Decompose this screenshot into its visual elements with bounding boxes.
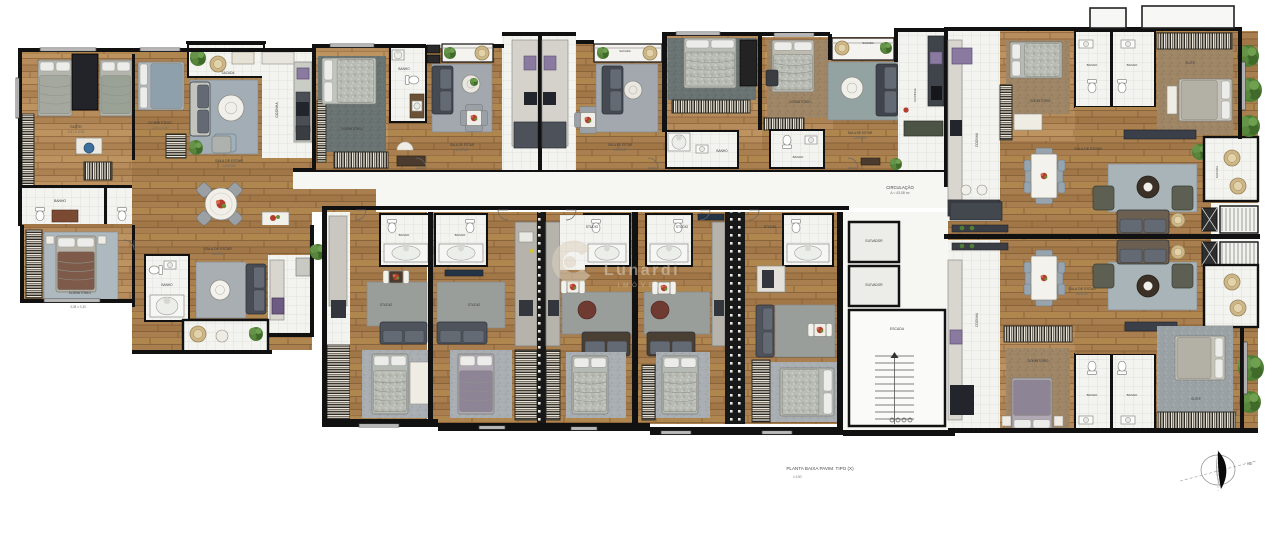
svg-text:SALA DE ESTAR: SALA DE ESTAR <box>1074 147 1102 151</box>
svg-text:ELEVADOR: ELEVADOR <box>865 283 883 287</box>
svg-text:SUÍTE: SUÍTE <box>1191 397 1202 401</box>
svg-text:BANHO: BANHO <box>716 149 728 153</box>
svg-text:ELEVADOR: ELEVADOR <box>865 239 883 243</box>
svg-text:COZINHA: COZINHA <box>913 88 917 102</box>
svg-text:COZINHA: COZINHA <box>275 102 279 118</box>
svg-text:BANHO: BANHO <box>793 155 804 159</box>
svg-text:BANHO: BANHO <box>1087 63 1098 67</box>
svg-text:Lunardi: Lunardi <box>604 262 680 279</box>
svg-text:COZINHA: COZINHA <box>975 312 979 327</box>
svg-text:JANTAR: JANTAR <box>854 136 867 140</box>
svg-text:DORMITÓRIO: DORMITÓRIO <box>341 126 363 131</box>
svg-text:ESCADA: ESCADA <box>890 327 905 331</box>
svg-text:SACADA: SACADA <box>619 49 631 53</box>
svg-text:2.20 x 3.10: 2.20 x 3.10 <box>152 126 169 130</box>
svg-text:SUÍTE: SUÍTE <box>1185 61 1196 65</box>
svg-text:DORMITÓRIO: DORMITÓRIO <box>789 99 811 104</box>
svg-text:BANHO: BANHO <box>398 67 410 71</box>
svg-text:JANTAR: JANTAR <box>614 148 627 152</box>
svg-text:3.27 x 3.90: 3.27 x 3.90 <box>68 130 85 134</box>
svg-text:SALA DE ESTAR: SALA DE ESTAR <box>215 159 243 163</box>
svg-text:DORMITÓRIO: DORMITÓRIO <box>148 120 172 125</box>
svg-text:SALA DE ESTAR: SALA DE ESTAR <box>608 143 633 147</box>
svg-text:NE: NE <box>1247 461 1253 466</box>
svg-text:COZINHA: COZINHA <box>975 132 979 147</box>
svg-text:SUÍTE: SUÍTE <box>70 124 82 129</box>
svg-text:JANTAR: JANTAR <box>212 252 225 256</box>
svg-text:CIRCULAÇÃO: CIRCULAÇÃO <box>886 185 914 190</box>
svg-text:SALA DE ESTAR: SALA DE ESTAR <box>204 247 232 251</box>
svg-text:SALA DE ESTAR: SALA DE ESTAR <box>848 131 873 135</box>
svg-text:SALA DE ESTAR: SALA DE ESTAR <box>450 143 475 147</box>
svg-text:BANHO: BANHO <box>1127 63 1138 67</box>
svg-text:BANHO: BANHO <box>161 283 173 287</box>
svg-text:BANHO: BANHO <box>399 233 410 237</box>
svg-text:SACADA: SACADA <box>862 41 874 45</box>
svg-text:PLANTA BAIXA PAVIM. TIPO (X): PLANTA BAIXA PAVIM. TIPO (X) <box>786 466 854 471</box>
svg-text:STUDIO: STUDIO <box>676 225 689 229</box>
svg-text:SACADA: SACADA <box>1215 166 1219 178</box>
svg-text:DORMITÓRIO: DORMITÓRIO <box>1030 98 1051 103</box>
svg-text:SACADA: SACADA <box>221 71 235 75</box>
svg-text:1:100: 1:100 <box>793 475 802 479</box>
svg-text:IMÓVEIS: IMÓVEIS <box>617 282 670 289</box>
svg-text:SALA DE ESTAR: SALA DE ESTAR <box>1068 287 1096 291</box>
svg-text:STUDIO: STUDIO <box>764 225 777 229</box>
svg-text:BANHO: BANHO <box>1127 393 1138 397</box>
svg-text:DORMITÓRIO: DORMITÓRIO <box>69 290 91 295</box>
svg-text:JANTAR: JANTAR <box>456 148 469 152</box>
svg-text:JANTAR: JANTAR <box>1076 292 1089 296</box>
svg-text:A = 43,08 m²: A = 43,08 m² <box>890 191 910 195</box>
svg-text:BANHO: BANHO <box>455 233 466 237</box>
svg-text:3,08 x 3,30: 3,08 x 3,30 <box>70 305 86 309</box>
svg-text:STUDIO: STUDIO <box>586 225 599 229</box>
svg-text:STUDIO: STUDIO <box>468 303 481 307</box>
svg-text:BANHO: BANHO <box>1087 393 1098 397</box>
svg-text:DORMITÓRIO: DORMITÓRIO <box>1028 358 1049 363</box>
svg-text:JANTAR: JANTAR <box>223 164 236 168</box>
svg-text:STUDIO: STUDIO <box>380 303 393 307</box>
svg-text:BANHO: BANHO <box>54 199 66 203</box>
